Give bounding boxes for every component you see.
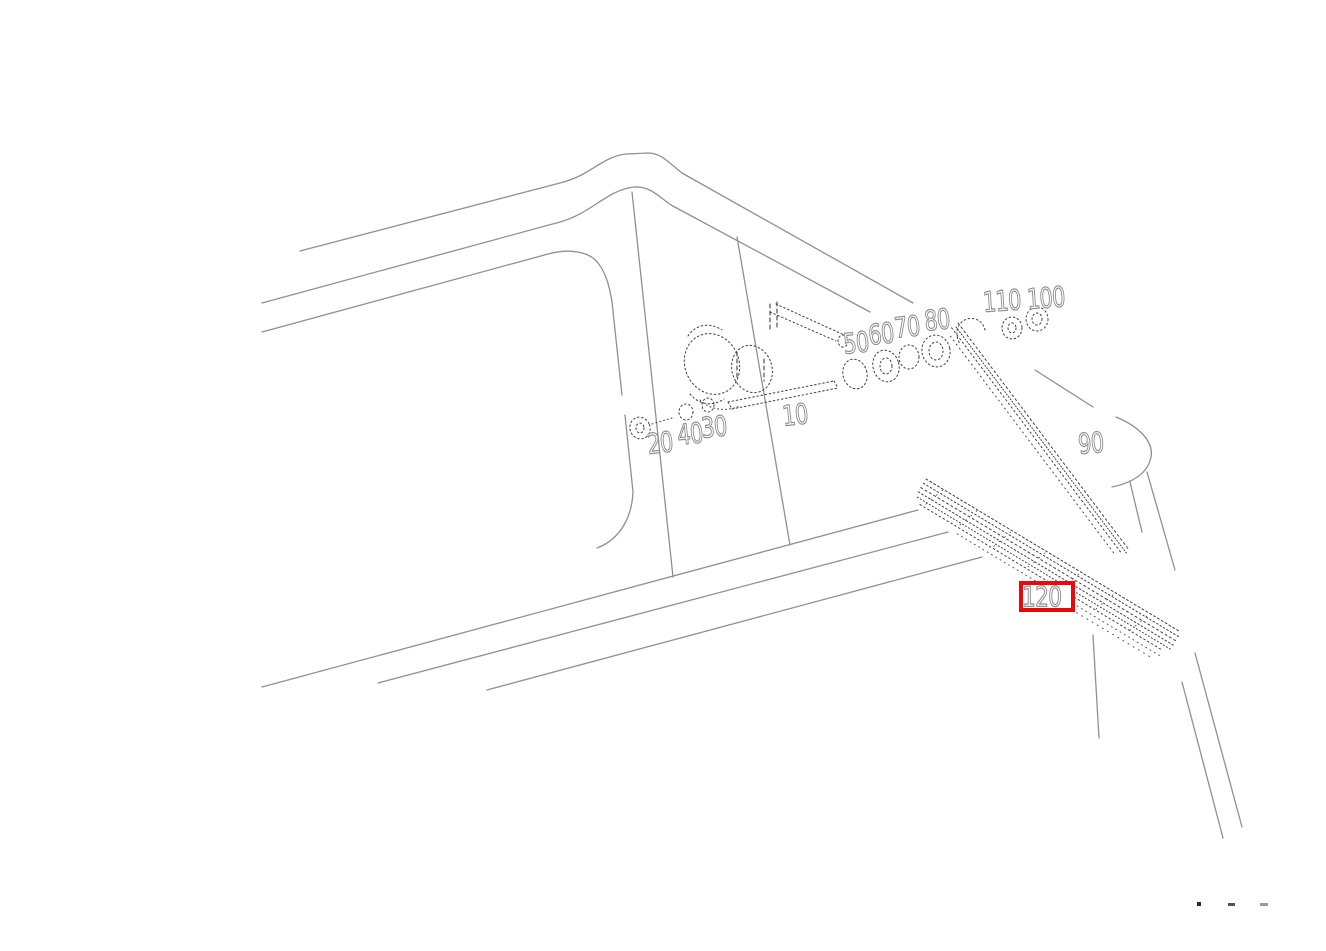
artifact-mark [1197, 902, 1201, 906]
wiper-motor-assembly [675, 302, 848, 409]
part-label-10[interactable]: 10 [781, 400, 809, 430]
part-label-110[interactable]: 110 [982, 286, 1022, 317]
part-label-90[interactable]: 90 [1077, 429, 1105, 459]
part-label-80[interactable]: 80 [923, 305, 951, 335]
parts-diagram-canvas: 204030105060708011010090 120 [0, 0, 1326, 951]
cowl-lines [262, 510, 982, 690]
part-label-40[interactable]: 40 [676, 419, 704, 449]
part-label-120[interactable]: 120 [1022, 583, 1061, 611]
diagram-line-art [0, 0, 1326, 951]
windshield-frame-lines [262, 153, 913, 577]
part-label-30[interactable]: 30 [700, 412, 728, 442]
highlighted-part-box[interactable]: 120 [1019, 581, 1075, 612]
part-label-20[interactable]: 20 [646, 428, 674, 458]
part-label-60[interactable]: 60 [867, 319, 895, 349]
part-label-70[interactable]: 70 [893, 312, 921, 342]
artifact-mark [1228, 903, 1235, 906]
wiper-blade-120 [907, 479, 1183, 665]
part-label-100[interactable]: 100 [1026, 283, 1066, 314]
part-label-50[interactable]: 50 [842, 328, 870, 358]
artifact-mark [1260, 903, 1268, 906]
